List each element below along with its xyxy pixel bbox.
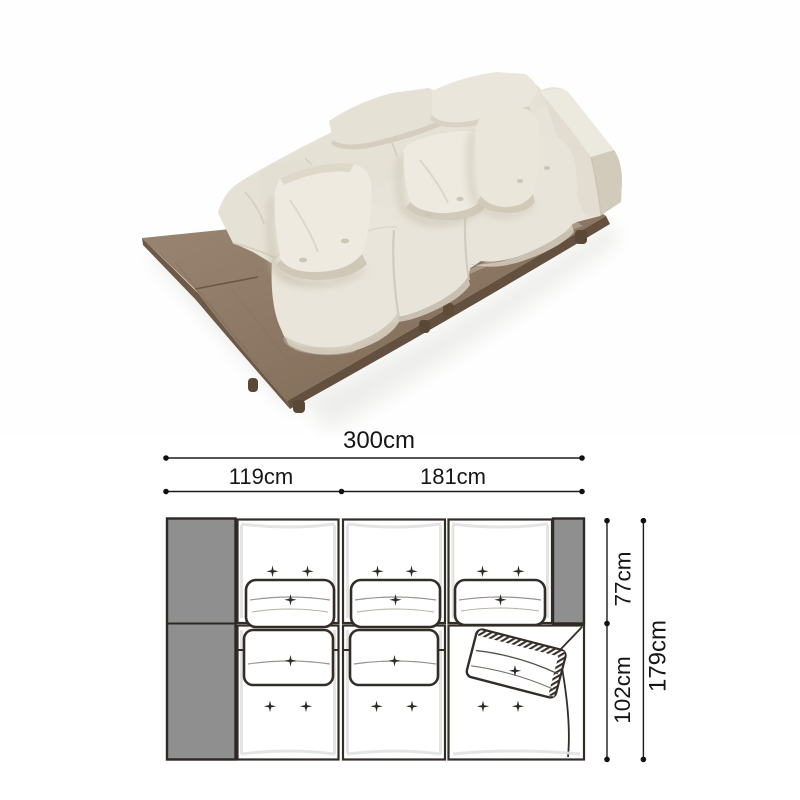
svg-text:179cm: 179cm — [645, 620, 672, 692]
svg-text:181cm: 181cm — [420, 464, 486, 489]
svg-text:119cm: 119cm — [229, 464, 293, 489]
svg-text:77cm: 77cm — [611, 551, 636, 606]
svg-text:300cm: 300cm — [343, 427, 415, 454]
svg-text:102cm: 102cm — [610, 656, 635, 724]
